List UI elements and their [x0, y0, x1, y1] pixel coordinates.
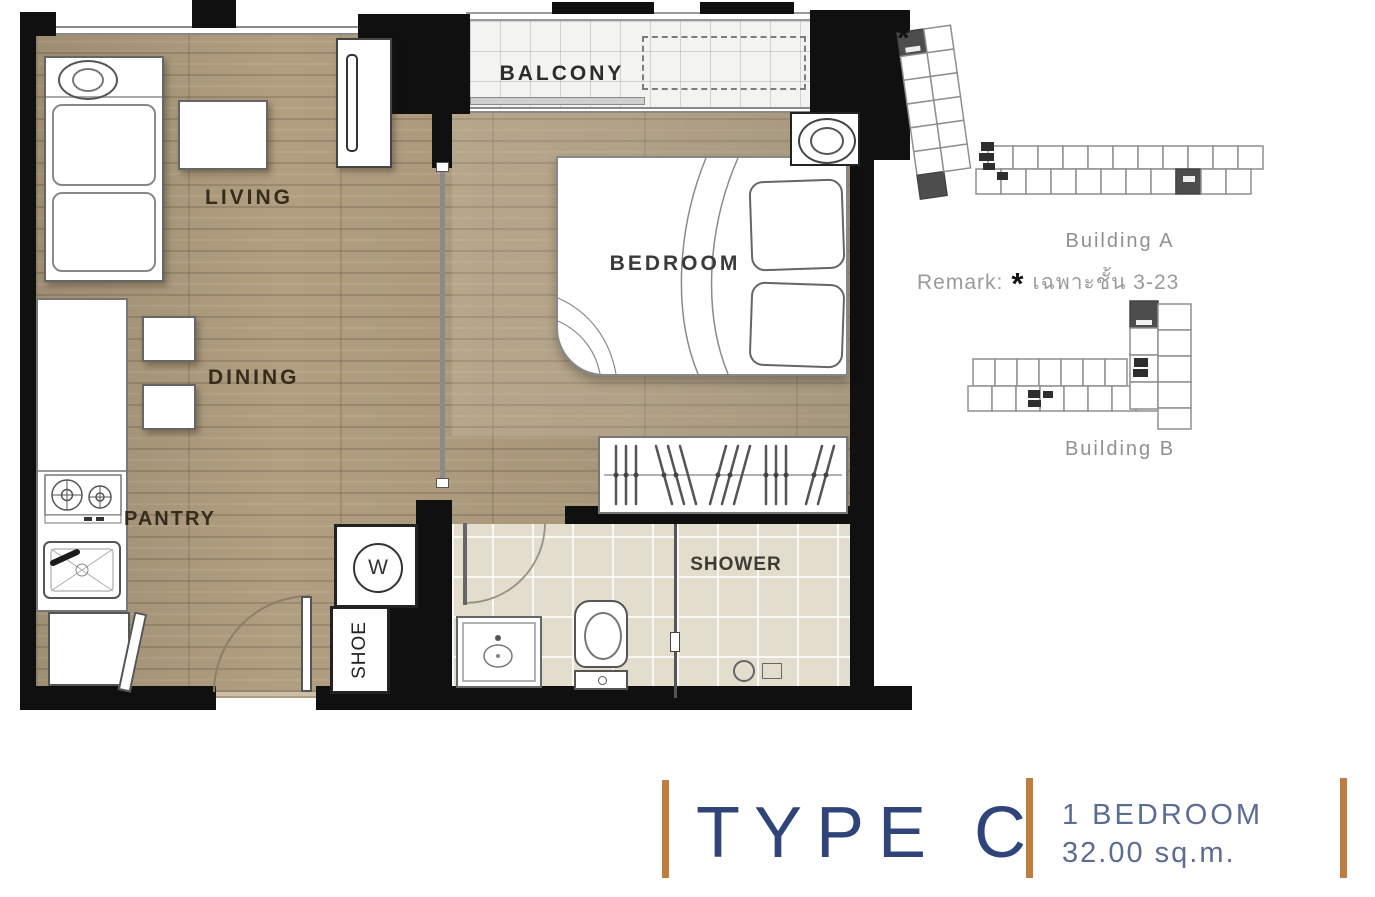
- room-label-shower: SHOWER: [676, 554, 796, 576]
- entrance-door-leaf: [301, 596, 312, 692]
- bedroom-count-label: 1 BEDROOM: [1062, 796, 1263, 834]
- accent-bar: [662, 780, 669, 878]
- washing-machine-drum: W: [353, 543, 403, 593]
- building-a-label: Building A: [1000, 230, 1240, 253]
- shower-door-handle: [670, 632, 680, 652]
- remark-prefix: Remark:: [917, 271, 1003, 294]
- hangers-icon: [598, 438, 848, 512]
- room-label-living: LIVING: [205, 186, 293, 210]
- toilet-flush-button: [598, 676, 607, 685]
- sofa-cushion: [52, 104, 156, 186]
- building-b-key-plan: [948, 296, 1273, 438]
- wall-shoe-recess: [390, 598, 452, 698]
- wall-exterior-mark-2: [700, 2, 794, 14]
- wall-top-column: [192, 0, 236, 28]
- balcony-dashed-outline: [642, 36, 806, 90]
- balcony-sliding-window: [468, 107, 812, 113]
- sliding-door: [440, 166, 445, 482]
- stove-icon: [44, 474, 122, 524]
- building-b-label: Building B: [1000, 438, 1240, 461]
- unit-spec: 1 BEDROOM 32.00 sq.m.: [1062, 796, 1263, 872]
- counter-divider: [38, 470, 126, 472]
- hand-shower-icon: [733, 660, 755, 682]
- lamp-inner-ring: [72, 68, 104, 92]
- building-a-key-plan: [893, 10, 1278, 220]
- pillow: [748, 178, 845, 271]
- ac-fan-inner-ring: [810, 127, 844, 155]
- kitchen-sink-icon: [42, 540, 122, 600]
- remark-text: เฉพาะชั้น 3-23: [1032, 271, 1179, 294]
- dining-chair: [142, 316, 196, 362]
- wall-right: [850, 158, 874, 698]
- shower-drain: [762, 663, 782, 679]
- tv-cabinet: [336, 38, 392, 168]
- toilet-bowl-ring: [584, 612, 622, 660]
- room-label-pantry: PANTRY: [124, 508, 216, 531]
- dining-chair: [142, 384, 196, 430]
- sliding-door-handle: [436, 162, 449, 172]
- room-label-bedroom: BEDROOM: [600, 252, 750, 276]
- coffee-table: [178, 100, 268, 170]
- unit-marker-asterisk: *: [897, 20, 909, 57]
- room-label-balcony: BALCONY: [497, 62, 627, 86]
- bathroom-door-swing: [460, 518, 570, 628]
- pillow: [749, 281, 846, 368]
- tv-icon: [346, 54, 358, 152]
- wall-left: [20, 12, 36, 698]
- washer-label: W: [368, 556, 388, 580]
- bathroom-door-leaf: [463, 523, 467, 605]
- shoe-cabinet: SHOE: [330, 606, 390, 694]
- sliding-door-handle: [436, 478, 449, 488]
- accent-bar: [1026, 778, 1033, 878]
- sofa-cushion: [52, 192, 156, 272]
- cabinet: [48, 612, 130, 686]
- room-label-dining: DINING: [208, 366, 300, 390]
- accent-bar: [1340, 778, 1347, 878]
- area-label: 32.00 sq.m.: [1062, 834, 1263, 872]
- wall-top-corner: [20, 12, 56, 36]
- shoe-cabinet-label: SHOE: [349, 621, 371, 679]
- floor-plan-sheet: W SHOE: [0, 0, 1375, 897]
- partition-wall-stub: [432, 112, 452, 168]
- wall-exterior-mark-1: [552, 2, 654, 14]
- balcony-door-track: [470, 97, 645, 105]
- type-title: TYPE C: [696, 792, 1040, 874]
- shower-glass-partition: [674, 524, 677, 698]
